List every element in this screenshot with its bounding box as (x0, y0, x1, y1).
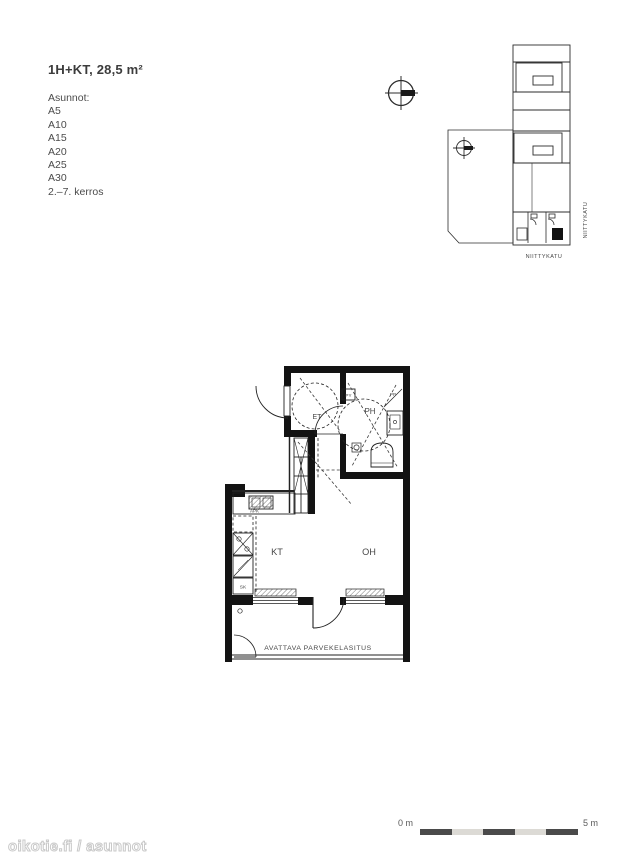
kitchen-counter (233, 493, 295, 594)
window-sill (255, 589, 296, 596)
label-pp: PP (390, 392, 396, 397)
floor-drain (352, 443, 361, 452)
apartment-item: A20 (48, 146, 103, 159)
apartment-item: A15 (48, 132, 103, 145)
balcony-door (313, 597, 344, 628)
upper-cabinet (233, 516, 253, 532)
compass-icon (385, 76, 418, 110)
toilet (371, 443, 393, 467)
stove (233, 533, 253, 555)
label-washer: PY (345, 393, 351, 398)
street-label-vertical: NIITTYKATU (583, 202, 589, 239)
floor-plan: ET PH KT OH PY PP APK SK AVATTAVA PARVEK… (220, 360, 415, 672)
page-title: 1H+KT, 28,5 m² (48, 62, 143, 77)
page: 1H+KT, 28,5 m² Asunnot: A5 A10 A15 A20 A… (0, 0, 641, 862)
site-plan: NIITTYKATU NIITTYKATU (385, 35, 600, 265)
apartment-list-label: Asunnot: (48, 92, 103, 105)
compass-icon-small (453, 137, 475, 159)
apartment-item: A10 (48, 119, 103, 132)
scale-segment (452, 829, 484, 835)
scale-segment (515, 829, 547, 835)
scale-label-start: 0 m (398, 818, 413, 828)
apartment-item: A5 (48, 105, 103, 118)
watermark: oikotie.fi / asunnot (8, 838, 147, 855)
street-label-horizontal: NIITTYKATU (526, 254, 563, 260)
entry-door (256, 386, 290, 418)
scale-segment (483, 829, 515, 835)
fridge (233, 556, 253, 577)
apartment-list: Asunnot: A5 A10 A15 A20 A25 A30 2.–7. ke… (48, 92, 103, 199)
room-label-bath: PH (364, 407, 375, 416)
label-cleaning-closet: SK (240, 585, 247, 591)
apartment-location-marker (552, 228, 563, 240)
building-outline (513, 45, 570, 245)
windows (253, 589, 385, 604)
scale-label-end: 5 m (583, 818, 598, 828)
scale-segment (546, 829, 578, 835)
label-dishwasher: APK (250, 509, 259, 514)
courtyard-outline (448, 130, 513, 243)
scale-segment (420, 829, 452, 835)
apartment-item: A25 (48, 159, 103, 172)
entry-turning-circle (292, 383, 338, 429)
balcony-glazing-label: AVATTAVA PARVEKELASITUS (264, 645, 372, 652)
balcony-drain (238, 609, 242, 613)
room-label-living: OH (362, 547, 376, 557)
room-label-entry: ET (313, 414, 323, 421)
stairwell-wing (517, 212, 555, 243)
apartment-item: A30 (48, 172, 103, 185)
bathroom-fixtures (338, 389, 403, 467)
room-label-kitchen: KT (271, 547, 283, 557)
floors-note: 2.–7. kerros (48, 186, 103, 199)
balcony-glazing-panel (234, 635, 256, 657)
scale-bar (420, 829, 578, 835)
window-sill (346, 589, 384, 596)
